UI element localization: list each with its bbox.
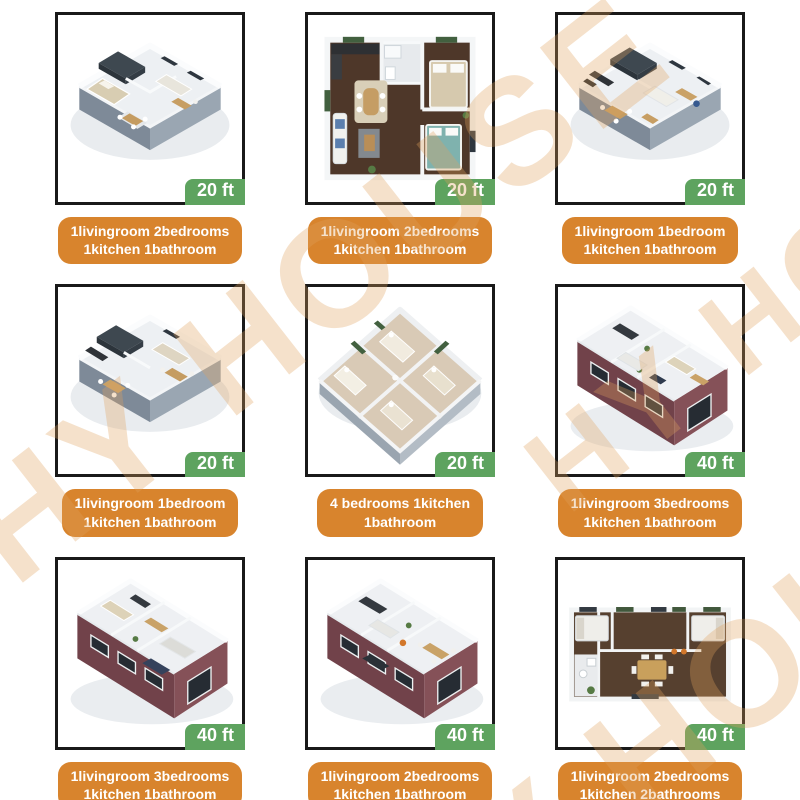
floorplan-render-icon xyxy=(558,15,742,202)
size-badge-label: 20 ft xyxy=(447,180,484,200)
size-badge: 20 ft xyxy=(185,452,245,478)
caption-line-2: 1kitchen 1bathroom xyxy=(71,240,230,258)
caption-line-1: 1livingroom 2bedrooms xyxy=(571,767,730,785)
plan-caption: 1livingroom 3bedrooms 1kitchen 1bathroom xyxy=(558,489,743,536)
size-badge: 20 ft xyxy=(435,179,495,205)
plan-image[interactable]: 40 ft xyxy=(555,284,745,477)
plan-image[interactable]: 20 ft xyxy=(55,284,245,477)
plan-caption: 1livingroom 3bedrooms 1kitchen 1bathroom xyxy=(58,762,243,800)
plan-image[interactable]: 20 ft xyxy=(55,12,245,205)
caption-line-1: 1livingroom 3bedrooms xyxy=(71,767,230,785)
plan-caption: 1livingroom 2bedrooms 1kitchen 1bathroom xyxy=(308,762,493,800)
caption-line-1: 4 bedrooms 1kitchen xyxy=(330,494,470,512)
caption-line-1: 1livingroom 2bedrooms xyxy=(71,222,230,240)
caption-line-1: 1livingroom 2bedrooms xyxy=(321,767,480,785)
floorplan-render-icon xyxy=(558,560,742,747)
floorplan-render-icon xyxy=(308,560,492,747)
size-badge: 20 ft xyxy=(435,452,495,478)
size-badge: 40 ft xyxy=(435,724,495,750)
floorplan-render-icon xyxy=(58,560,242,747)
plan-image[interactable]: 20 ft xyxy=(305,284,495,477)
plan-image[interactable]: 20 ft xyxy=(555,12,745,205)
size-badge-label: 20 ft xyxy=(697,180,734,200)
caption-line-2: 1kitchen 1bathroom xyxy=(575,240,726,258)
plan-card: 40 ft 1livingroom 3bedrooms 1kitchen 1ba… xyxy=(555,284,745,536)
plan-caption: 1livingroom 1bedroom 1kitchen 1bathroom xyxy=(62,489,239,536)
caption-line-1: 1livingroom 1bedroom xyxy=(575,222,726,240)
size-badge-label: 40 ft xyxy=(697,725,734,745)
caption-line-2: 1kitchen 1bathroom xyxy=(321,240,480,258)
size-badge-label: 20 ft xyxy=(197,453,234,473)
plan-grid: 20 ft 1livingroom 2bedrooms 1kitchen 1ba… xyxy=(0,0,800,800)
floorplan-catalog-page: 20 ft 1livingroom 2bedrooms 1kitchen 1ba… xyxy=(0,0,800,800)
plan-card: 40 ft 1livingroom 2bedrooms 1kitchen 2ba… xyxy=(555,557,745,800)
plan-card: 40 ft 1livingroom 2bedrooms 1kitchen 1ba… xyxy=(305,557,495,800)
caption-line-2: 1kitchen 1bathroom xyxy=(75,513,226,531)
size-badge: 40 ft xyxy=(685,452,745,478)
plan-image[interactable]: 40 ft xyxy=(305,557,495,750)
caption-line-1: 1livingroom 2bedrooms xyxy=(321,222,480,240)
size-badge-label: 40 ft xyxy=(447,725,484,745)
size-badge: 40 ft xyxy=(685,724,745,750)
plan-caption: 1livingroom 2bedrooms 1kitchen 1bathroom xyxy=(58,217,243,264)
caption-line-1: 1livingroom 1bedroom xyxy=(75,494,226,512)
floorplan-render-icon xyxy=(308,15,492,202)
plan-caption: 1livingroom 2bedrooms 1kitchen 1bathroom xyxy=(308,217,493,264)
plan-caption: 1livingroom 1bedroom 1kitchen 1bathroom xyxy=(562,217,739,264)
plan-image[interactable]: 40 ft xyxy=(555,557,745,750)
floorplan-render-icon xyxy=(308,287,492,474)
plan-card: 20 ft 1livingroom 2bedrooms 1kitchen 1ba… xyxy=(305,12,495,264)
plan-caption: 1livingroom 2bedrooms 1kitchen 2bathroom… xyxy=(558,762,743,800)
plan-card: 20 ft 1livingroom 1bedroom 1kitchen 1bat… xyxy=(555,12,745,264)
caption-line-2: 1kitchen 1bathroom xyxy=(571,513,730,531)
size-badge-label: 20 ft xyxy=(447,453,484,473)
plan-caption: 4 bedrooms 1kitchen 1bathroom xyxy=(317,489,483,536)
plan-image[interactable]: 40 ft xyxy=(55,557,245,750)
caption-line-2: 1kitchen 2bathrooms xyxy=(571,785,730,800)
plan-card: 20 ft 1livingroom 1bedroom 1kitchen 1bat… xyxy=(55,284,245,536)
floorplan-render-icon xyxy=(58,287,242,474)
plan-card: 20 ft 4 bedrooms 1kitchen 1bathroom xyxy=(305,284,495,536)
caption-line-1: 1livingroom 3bedrooms xyxy=(571,494,730,512)
size-badge: 20 ft xyxy=(685,179,745,205)
size-badge: 20 ft xyxy=(185,179,245,205)
floorplan-render-icon xyxy=(58,15,242,202)
size-badge-label: 20 ft xyxy=(197,180,234,200)
plan-image[interactable]: 20 ft xyxy=(305,12,495,205)
caption-line-2: 1kitchen 1bathroom xyxy=(71,785,230,800)
size-badge-label: 40 ft xyxy=(197,725,234,745)
plan-card: 20 ft 1livingroom 2bedrooms 1kitchen 1ba… xyxy=(55,12,245,264)
size-badge-label: 40 ft xyxy=(697,453,734,473)
caption-line-2: 1bathroom xyxy=(330,513,470,531)
size-badge: 40 ft xyxy=(185,724,245,750)
plan-card: 40 ft 1livingroom 3bedrooms 1kitchen 1ba… xyxy=(55,557,245,800)
caption-line-2: 1kitchen 1bathroom xyxy=(321,785,480,800)
floorplan-render-icon xyxy=(558,287,742,474)
